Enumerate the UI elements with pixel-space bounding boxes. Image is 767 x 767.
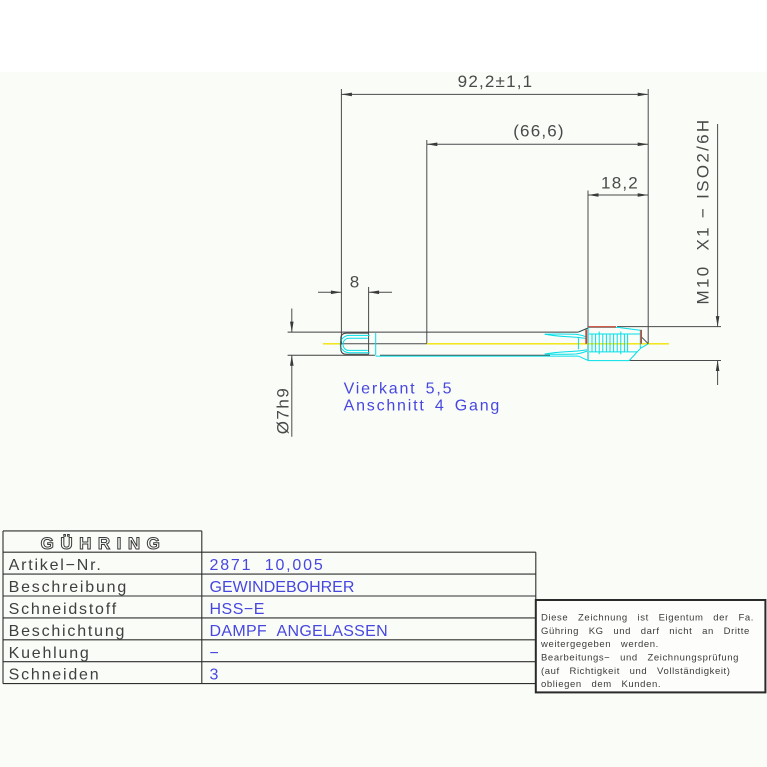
svg-text:−: − [210,645,219,662]
svg-text:Anschnitt 4 Gang: Anschnitt 4 Gang [344,397,502,414]
svg-text:(auf Richtigkeit und Vollständ: (auf Richtigkeit und Vollständigkeit) [541,666,731,677]
svg-text:(66,6): (66,6) [513,122,565,141]
svg-text:3: 3 [210,667,219,684]
svg-text:2871 10,005: 2871 10,005 [210,557,325,574]
svg-text:Artikel−Nr.: Artikel−Nr. [9,557,103,574]
svg-text:GEWINDEBOHRER: GEWINDEBOHRER [210,579,355,596]
svg-text:HSS−E: HSS−E [210,601,265,618]
svg-text:Schneidstoff: Schneidstoff [9,601,118,618]
svg-text:8: 8 [350,273,359,292]
svg-text:Kuehlung: Kuehlung [9,645,91,662]
svg-text:Beschichtung: Beschichtung [9,623,127,640]
svg-text:obliegen dem Kunden.: obliegen dem Kunden. [541,679,661,690]
svg-text:Schneiden: Schneiden [9,667,101,684]
svg-text:Bearbeitungs− und Zeichnungspr: Bearbeitungs− und Zeichnungsprüfung [541,653,739,664]
svg-text:weitergegeben werden.: weitergegeben werden. [540,639,659,650]
svg-text:18,2: 18,2 [601,173,639,192]
svg-text:GÜHRING: GÜHRING [41,534,167,553]
svg-text:Beschreibung: Beschreibung [9,579,128,596]
svg-text:Ø7h9: Ø7h9 [274,387,293,435]
svg-text:M10 X1 − ISO2/6H: M10 X1 − ISO2/6H [694,118,713,305]
svg-text:DAMPF ANGELASSEN: DAMPF ANGELASSEN [210,623,388,640]
svg-text:Vierkant 5,5: Vierkant 5,5 [344,380,454,397]
svg-text:Diese Zeichnung ist Eigentum d: Diese Zeichnung ist Eigentum der Fa. [541,613,754,624]
svg-text:92,2±1,1: 92,2±1,1 [458,72,534,91]
svg-text:Gühring KG und darf nicht an D: Gühring KG und darf nicht an Dritte [541,626,750,637]
